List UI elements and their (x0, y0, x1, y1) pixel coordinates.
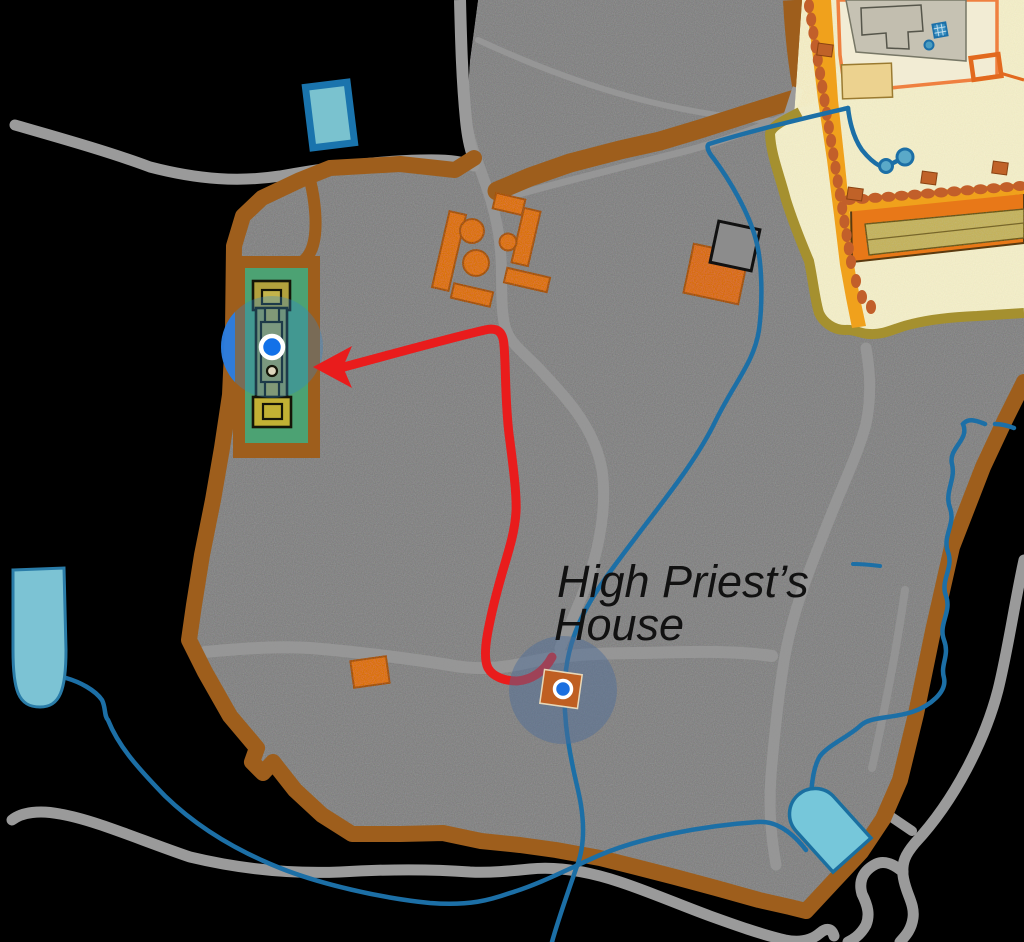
svg-text:House: House (554, 599, 684, 650)
